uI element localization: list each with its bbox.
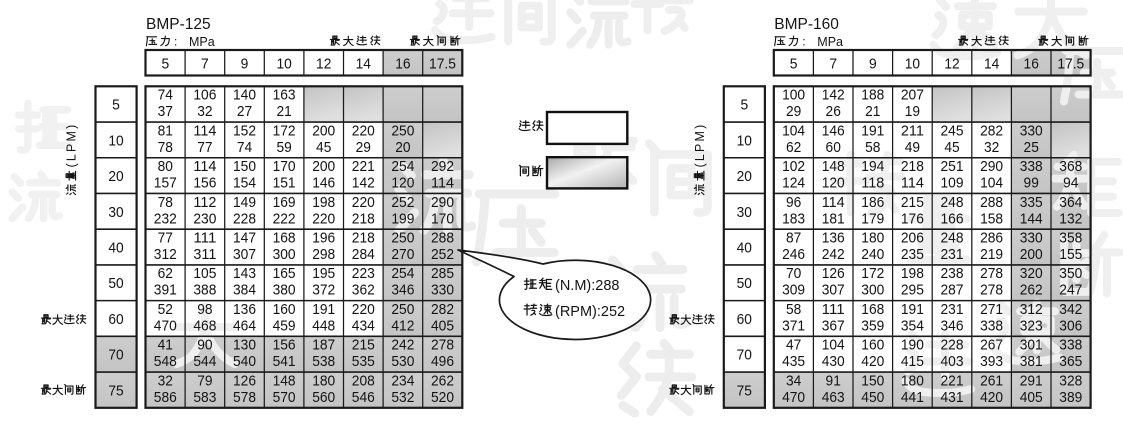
svg-text:362: 362 [352,282,375,299]
svg-text:540: 540 [233,353,256,370]
svg-text:181: 181 [822,210,845,227]
svg-text:186: 186 [861,194,884,211]
svg-text:74: 74 [158,87,173,104]
svg-text:126: 126 [233,372,256,389]
svg-text:14: 14 [356,56,371,73]
svg-text:58: 58 [786,301,801,318]
svg-text:538: 538 [312,353,335,370]
svg-text:262: 262 [1020,282,1043,299]
svg-text:99: 99 [1024,175,1039,192]
svg-text:198: 198 [312,194,335,211]
svg-text:393: 393 [980,353,1003,370]
svg-text:7: 7 [829,56,837,73]
svg-text:367: 367 [822,317,845,334]
svg-text:468: 468 [193,317,216,334]
svg-text:380: 380 [273,282,296,299]
svg-text:251: 251 [941,158,964,175]
svg-text:102: 102 [782,158,805,175]
svg-text:335: 335 [1020,194,1043,211]
svg-text:295: 295 [901,282,924,299]
svg-text:306: 306 [1059,317,1082,334]
svg-text:9: 9 [869,56,877,73]
svg-text:176: 176 [901,210,924,227]
svg-text:17.5: 17.5 [1057,56,1084,73]
svg-text:307: 307 [233,246,256,263]
svg-text:37: 37 [158,103,173,120]
svg-text:MPa: MPa [817,35,843,49]
svg-text:330: 330 [1020,122,1043,139]
svg-text:328: 328 [1059,372,1082,389]
svg-text:346: 346 [391,282,414,299]
svg-text:282: 282 [980,122,1003,139]
svg-text:45: 45 [944,139,959,156]
svg-text:45: 45 [316,139,331,156]
svg-text:149: 149 [233,194,256,211]
svg-text:290: 290 [980,158,1003,175]
svg-text:368: 368 [1059,158,1082,175]
svg-text:586: 586 [154,389,177,406]
svg-text:MPa: MPa [189,35,215,49]
svg-text:(RPM):252: (RPM):252 [555,304,625,320]
svg-text:284: 284 [352,246,375,263]
svg-text:530: 530 [391,353,414,370]
svg-text:219: 219 [980,246,1003,263]
svg-text:5: 5 [112,97,120,114]
svg-text:320: 320 [1020,265,1043,282]
svg-text:172: 172 [861,265,884,282]
svg-text:286: 286 [980,230,1003,247]
svg-text:441: 441 [901,389,924,406]
svg-text:75: 75 [737,382,752,399]
svg-text:221: 221 [352,158,375,175]
svg-text:98: 98 [197,301,212,318]
svg-text:207: 207 [901,87,924,104]
svg-text:412: 412 [391,317,414,334]
svg-text:180: 180 [861,230,884,247]
svg-text:292: 292 [431,158,454,175]
svg-text:147: 147 [233,230,256,247]
svg-text:532: 532 [391,389,414,406]
svg-text:80: 80 [158,158,173,175]
svg-text:391: 391 [154,282,177,299]
svg-text:40: 40 [108,240,123,257]
svg-text:170: 170 [431,210,454,227]
svg-text:535: 535 [352,353,375,370]
svg-text:105: 105 [193,265,216,282]
svg-text:278: 278 [431,337,454,354]
svg-text:191: 191 [312,301,335,318]
svg-text:75: 75 [108,382,123,399]
svg-text:32: 32 [984,139,999,156]
svg-text:230: 230 [193,210,216,227]
svg-text:160: 160 [273,301,296,318]
svg-text:405: 405 [1020,389,1043,406]
svg-text:232: 232 [154,210,177,227]
svg-text:96: 96 [786,194,801,211]
svg-text:58: 58 [865,139,880,156]
svg-text:459: 459 [273,317,296,334]
svg-text:156: 156 [273,337,296,354]
svg-text:191: 191 [861,122,884,139]
svg-text:200: 200 [312,122,335,139]
svg-text:330: 330 [431,282,454,299]
svg-text:195: 195 [312,265,335,282]
svg-text:338: 338 [980,317,1003,334]
svg-text:112: 112 [193,194,216,211]
svg-text:59: 59 [276,139,291,156]
svg-text:158: 158 [980,210,1003,227]
svg-text:250: 250 [391,230,414,247]
svg-text:342: 342 [1059,301,1082,318]
svg-text:200: 200 [1020,246,1043,263]
svg-text:10: 10 [737,132,752,149]
svg-text:10: 10 [108,132,123,149]
svg-text:220: 220 [352,122,375,139]
svg-text:570: 570 [273,389,296,406]
svg-text:10: 10 [905,56,920,73]
svg-text:248: 248 [941,194,964,211]
svg-text:282: 282 [431,301,454,318]
svg-text:285: 285 [431,265,454,282]
svg-text:371: 371 [782,317,805,334]
svg-text:17.5: 17.5 [429,56,456,73]
svg-text:142: 142 [822,87,845,104]
svg-text:114: 114 [193,158,216,175]
svg-text:228: 228 [941,337,964,354]
svg-text:81: 81 [158,122,173,139]
svg-text:5: 5 [161,56,169,73]
svg-text:231: 231 [941,246,964,263]
svg-text:309: 309 [782,282,805,299]
svg-text:148: 148 [822,158,845,175]
svg-text:169: 169 [273,194,296,211]
svg-text:154: 154 [233,175,256,192]
svg-text:78: 78 [158,139,173,156]
svg-text:220: 220 [312,210,335,227]
svg-text:94: 94 [1063,175,1078,192]
svg-text:104: 104 [782,122,805,139]
svg-text:BMP-160: BMP-160 [774,16,839,33]
svg-text:300: 300 [861,282,884,299]
svg-text:583: 583 [193,389,216,406]
svg-text:29: 29 [786,103,801,120]
svg-text:267: 267 [980,337,1003,354]
svg-text:50: 50 [108,275,123,292]
svg-text:104: 104 [980,175,1003,192]
svg-text:79: 79 [197,372,212,389]
svg-text:218: 218 [352,210,375,227]
svg-text:338: 338 [1059,337,1082,354]
svg-text:206: 206 [901,230,924,247]
svg-text:191: 191 [901,301,924,318]
svg-text:78: 78 [158,194,173,211]
svg-text:100: 100 [782,87,805,104]
svg-text:252: 252 [431,246,454,263]
svg-text:130: 130 [233,337,256,354]
svg-text:215: 215 [901,194,924,211]
svg-text:388: 388 [193,282,216,299]
svg-text:62: 62 [158,265,173,282]
svg-text:183: 183 [782,210,805,227]
svg-text:220: 220 [352,301,375,318]
svg-text:(N.M):288: (N.M):288 [555,278,619,294]
svg-text:288: 288 [431,230,454,247]
svg-text:150: 150 [233,158,256,175]
svg-text:221: 221 [941,372,964,389]
svg-text:60: 60 [826,139,841,156]
svg-text:242: 242 [391,337,414,354]
svg-text:50: 50 [737,275,752,292]
svg-text:222: 222 [273,210,296,227]
svg-text:389: 389 [1059,389,1082,406]
svg-text:9: 9 [241,56,249,73]
svg-text:403: 403 [941,353,964,370]
svg-text:146: 146 [312,175,335,192]
svg-text:12: 12 [316,56,331,73]
svg-text:49: 49 [905,139,920,156]
svg-text:291: 291 [1020,372,1043,389]
svg-text:70: 70 [108,347,123,364]
svg-text:231: 231 [941,301,964,318]
svg-text:405: 405 [431,317,454,334]
svg-text:104: 104 [822,337,845,354]
svg-text:287: 287 [941,282,964,299]
svg-text:163: 163 [273,87,296,104]
svg-text:435: 435 [782,353,805,370]
svg-text:346: 346 [941,317,964,334]
svg-text:41: 41 [158,337,173,354]
svg-text:188: 188 [861,87,884,104]
svg-text:496: 496 [431,353,454,370]
svg-text:431: 431 [941,389,964,406]
svg-text:32: 32 [197,103,212,120]
svg-text:34: 34 [786,372,801,389]
svg-text:238: 238 [941,265,964,282]
svg-text:32: 32 [158,372,173,389]
svg-text:143: 143 [233,265,256,282]
svg-text:160: 160 [861,337,884,354]
svg-text:330: 330 [1020,230,1043,247]
svg-text:354: 354 [901,317,924,334]
svg-text:220: 220 [352,194,375,211]
svg-text:BMP-125: BMP-125 [146,16,211,33]
svg-text:578: 578 [233,389,256,406]
svg-text:20: 20 [108,168,123,185]
svg-text:359: 359 [861,317,884,334]
svg-text:252: 252 [391,194,414,211]
svg-text:91: 91 [826,372,841,389]
svg-text:365: 365 [1059,353,1082,370]
svg-text:111: 111 [193,230,216,247]
svg-text:16: 16 [395,56,410,73]
svg-text:120: 120 [391,175,414,192]
svg-text:114: 114 [901,175,924,192]
svg-text:126: 126 [822,265,845,282]
svg-text:109: 109 [941,175,964,192]
svg-text:448: 448 [312,317,335,334]
svg-text:152: 152 [233,122,256,139]
svg-text:434: 434 [352,317,375,334]
svg-text:157: 157 [154,175,177,192]
svg-text:338: 338 [1020,158,1043,175]
svg-text:199: 199 [391,210,414,227]
svg-text:235: 235 [901,246,924,263]
svg-text:148: 148 [273,372,296,389]
svg-text:52: 52 [158,301,173,318]
svg-text:111: 111 [822,301,845,318]
svg-text:136: 136 [233,301,256,318]
svg-text:381: 381 [1020,353,1043,370]
svg-text:415: 415 [901,353,924,370]
svg-text:30: 30 [737,204,752,221]
svg-text:170: 170 [273,158,296,175]
svg-text:218: 218 [901,158,924,175]
svg-text:215: 215 [352,337,375,354]
svg-text:62: 62 [786,139,801,156]
svg-text:30: 30 [108,204,123,221]
svg-text:5: 5 [740,97,748,114]
svg-text:194: 194 [861,158,884,175]
svg-text:74: 74 [237,139,252,156]
svg-text:(LPM): (LPM) [65,122,79,167]
svg-text:132: 132 [1059,210,1082,227]
svg-text:120: 120 [822,175,845,192]
svg-text:261: 261 [980,372,1003,389]
svg-text:301: 301 [1020,337,1043,354]
svg-text:546: 546 [352,389,375,406]
svg-text:146: 146 [822,122,845,139]
svg-text:60: 60 [737,311,752,328]
svg-text:155: 155 [1059,246,1082,263]
svg-text:384: 384 [233,282,256,299]
svg-text:463: 463 [822,389,845,406]
svg-text:430: 430 [822,353,845,370]
svg-text:140: 140 [233,87,256,104]
svg-text:560: 560 [312,389,335,406]
svg-text:200: 200 [312,158,335,175]
svg-text:70: 70 [737,347,752,364]
svg-text:106: 106 [193,87,216,104]
svg-text:250: 250 [391,122,414,139]
svg-text::: : [802,35,805,49]
svg-text:234: 234 [391,372,414,389]
svg-text:544: 544 [193,353,216,370]
svg-text:(LPM): (LPM) [693,122,707,167]
svg-text:250: 250 [391,301,414,318]
svg-text:142: 142 [352,175,375,192]
svg-text:14: 14 [984,56,999,73]
svg-text:151: 151 [273,175,296,192]
svg-text:307: 307 [822,282,845,299]
svg-text:541: 541 [273,353,296,370]
svg-text:114: 114 [822,194,845,211]
svg-text:21: 21 [865,103,880,120]
svg-text:470: 470 [154,317,177,334]
svg-text:16: 16 [1024,56,1039,73]
svg-text:47: 47 [786,337,801,354]
svg-text:240: 240 [861,246,884,263]
svg-text:7: 7 [201,56,209,73]
svg-text:208: 208 [352,372,375,389]
svg-text:312: 312 [154,246,177,263]
svg-text:254: 254 [391,158,414,175]
svg-text:77: 77 [158,230,173,247]
svg-text:168: 168 [273,230,296,247]
svg-text:450: 450 [861,389,884,406]
svg-text:242: 242 [822,246,845,263]
svg-text:180: 180 [901,372,924,389]
svg-text:156: 156 [193,175,216,192]
svg-text:278: 278 [980,265,1003,282]
svg-text:166: 166 [941,210,964,227]
svg-text:187: 187 [312,337,335,354]
svg-text:372: 372 [312,282,335,299]
svg-text:228: 228 [233,210,256,227]
svg-text:190: 190 [901,337,924,354]
svg-text:40: 40 [737,240,752,257]
svg-text:198: 198 [901,265,924,282]
svg-text:26: 26 [826,103,841,120]
svg-text:262: 262 [431,372,454,389]
svg-text:168: 168 [861,301,884,318]
svg-text:247: 247 [1059,282,1082,299]
svg-text:179: 179 [861,210,884,227]
svg-text:21: 21 [276,103,291,120]
svg-text:124: 124 [782,175,805,192]
svg-text:150: 150 [861,372,884,389]
svg-text:196: 196 [312,230,335,247]
svg-text:70: 70 [786,265,801,282]
svg-text:254: 254 [391,265,414,282]
svg-text:300: 300 [273,246,296,263]
svg-text:165: 165 [273,265,296,282]
svg-text:87: 87 [786,230,801,247]
svg-text:25: 25 [1024,139,1039,156]
svg-text:20: 20 [737,168,752,185]
svg-text:5: 5 [790,56,798,73]
svg-text:12: 12 [944,56,959,73]
svg-text:358: 358 [1059,230,1082,247]
svg-text:278: 278 [980,282,1003,299]
svg-text:180: 180 [312,372,335,389]
svg-text:271: 271 [980,301,1003,318]
svg-text:77: 77 [197,139,212,156]
svg-text:223: 223 [352,265,375,282]
svg-text:118: 118 [861,175,884,192]
svg-text:420: 420 [980,389,1003,406]
svg-text:218: 218 [352,230,375,247]
svg-text:270: 270 [391,246,414,263]
svg-text:27: 27 [237,103,252,120]
svg-text:311: 311 [193,246,216,263]
svg-text:20: 20 [395,139,410,156]
svg-text:245: 245 [941,122,964,139]
svg-text:312: 312 [1020,301,1043,318]
svg-text:90: 90 [197,337,212,354]
svg-text::: : [174,35,177,49]
svg-text:464: 464 [233,317,256,334]
svg-text:246: 246 [782,246,805,263]
svg-text:323: 323 [1020,317,1043,334]
svg-text:136: 136 [822,230,845,247]
svg-text:420: 420 [861,353,884,370]
svg-text:288: 288 [980,194,1003,211]
svg-text:114: 114 [431,175,454,192]
svg-text:290: 290 [431,194,454,211]
svg-text:10: 10 [276,56,291,73]
svg-text:470: 470 [782,389,805,406]
svg-text:364: 364 [1059,194,1082,211]
